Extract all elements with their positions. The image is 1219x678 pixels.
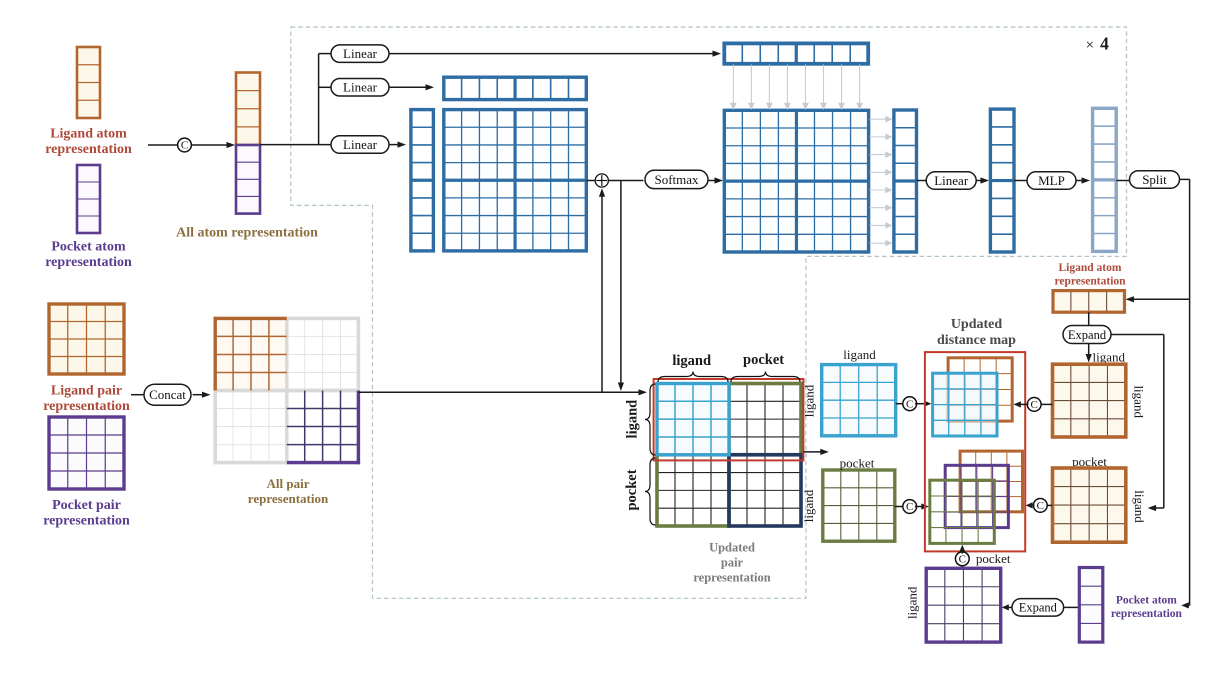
svg-text:Ligand atom: Ligand atom: [50, 127, 127, 142]
svg-text:Linear: Linear: [934, 173, 969, 188]
svg-text:ligand: ligand: [1093, 350, 1126, 365]
svg-text:C: C: [1037, 500, 1044, 512]
svg-text:ligand: ligand: [801, 489, 816, 522]
svg-text:Updated: Updated: [709, 541, 755, 555]
svg-text:Ligand pair: Ligand pair: [51, 384, 122, 399]
svg-text:pocket: pocket: [976, 551, 1011, 566]
svg-text:ligand: ligand: [1132, 385, 1147, 418]
svg-text:C: C: [959, 554, 966, 566]
svg-text:C: C: [1031, 399, 1038, 411]
svg-text:representation: representation: [45, 142, 132, 157]
svg-text:representation: representation: [43, 399, 130, 414]
svg-text:pocket: pocket: [840, 456, 875, 471]
svg-text:ligand: ligand: [672, 353, 711, 369]
svg-text:ligand: ligand: [625, 400, 641, 439]
svg-text:pocket: pocket: [743, 352, 784, 368]
svg-text:ligand: ligand: [1132, 490, 1147, 523]
svg-text:Ligand atom: Ligand atom: [1059, 262, 1122, 274]
svg-text:Linear: Linear: [343, 137, 378, 152]
svg-text:MLP: MLP: [1038, 173, 1065, 188]
svg-text:representation: representation: [43, 514, 130, 529]
svg-text:Updated: Updated: [951, 317, 1003, 332]
svg-text:representation: representation: [248, 491, 329, 506]
svg-text:pair: pair: [721, 556, 744, 570]
svg-text:representation: representation: [1111, 608, 1183, 620]
svg-text:Softmax: Softmax: [654, 172, 699, 187]
svg-text:Pocket atom: Pocket atom: [1116, 595, 1177, 607]
svg-text:ligand: ligand: [905, 586, 920, 619]
svg-text:distance map: distance map: [937, 333, 1016, 348]
svg-text:representation: representation: [693, 571, 770, 585]
svg-text:ligand: ligand: [802, 384, 817, 417]
svg-text:representation: representation: [45, 255, 132, 270]
svg-text:Linear: Linear: [343, 80, 378, 95]
svg-text:All pair: All pair: [267, 476, 310, 491]
svg-text:Expand: Expand: [1068, 328, 1107, 342]
svg-text:C: C: [181, 140, 188, 152]
svg-text:C: C: [906, 501, 913, 513]
svg-text:Pocket pair: Pocket pair: [52, 498, 121, 513]
svg-text:Split: Split: [1142, 172, 1167, 187]
svg-text:representation: representation: [1054, 276, 1126, 288]
svg-text:ligand: ligand: [843, 347, 876, 362]
svg-text:×: ×: [1086, 37, 1094, 53]
svg-text:pocket: pocket: [624, 469, 640, 510]
svg-text:All atom representation: All atom representation: [176, 226, 318, 241]
svg-text:Expand: Expand: [1019, 601, 1058, 615]
svg-text:Pocket atom: Pocket atom: [51, 240, 126, 255]
svg-text:4: 4: [1100, 33, 1109, 53]
svg-text:Concat: Concat: [149, 387, 186, 402]
svg-text:Linear: Linear: [343, 46, 378, 61]
svg-text:C: C: [906, 398, 913, 410]
